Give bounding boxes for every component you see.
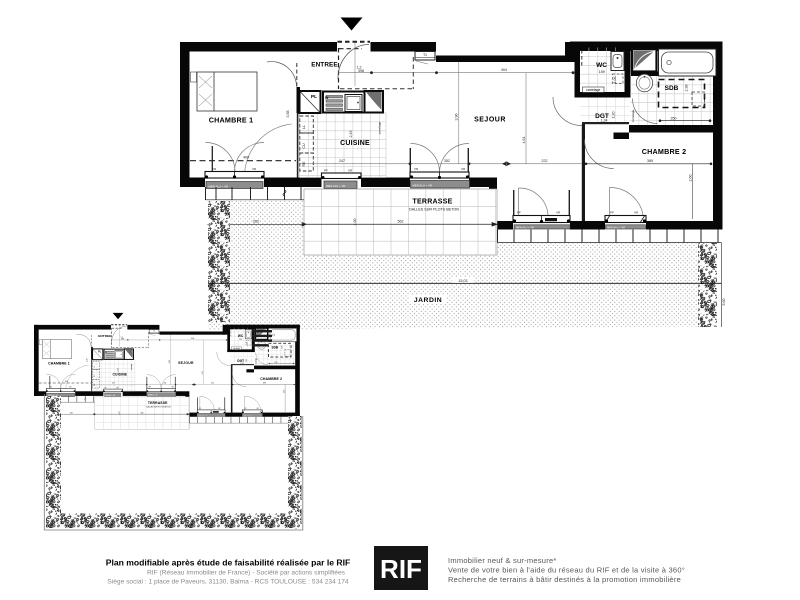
svg-text:PF: PF <box>324 169 328 173</box>
svg-text:VR: VR <box>252 167 257 171</box>
svg-text:CU: CU <box>302 143 306 149</box>
svg-text:MEN ALU + VR: MEN ALU + VR <box>413 184 432 188</box>
svg-text:MEN ALU + VR: MEN ALU + VR <box>607 225 625 229</box>
svg-text:carrelage: carrelage <box>586 88 600 92</box>
svg-text:RIF: RIF <box>380 554 422 584</box>
svg-text:Siège social : 1 place de Pave: Siège social : 1 place de Paveurs, 31130… <box>107 579 349 586</box>
svg-text:250: 250 <box>671 116 677 120</box>
svg-text:RIF (Réseau Immobilier de Fra: RIF (Réseau Immobilier de France) - Soci… <box>147 570 346 577</box>
svg-text:VR: VR <box>556 211 561 215</box>
svg-text:CHAMBRE 2: CHAMBRE 2 <box>642 147 687 156</box>
svg-text:159: 159 <box>599 70 605 74</box>
svg-text:VR: VR <box>414 167 419 171</box>
svg-text:Immobilier neuf & sur-mesure*: Immobilier neuf & sur-mesure* <box>448 556 557 565</box>
svg-text:222: 222 <box>542 159 548 163</box>
svg-text:247: 247 <box>339 159 345 163</box>
svg-text:5,60: 5,60 <box>722 299 726 306</box>
svg-text:Vente de votre bien à l'aide d: Vente de votre bien à l'aide du réseau d… <box>448 566 685 575</box>
svg-text:SDB: SDB <box>665 85 679 92</box>
svg-text:JARDIN: JARDIN <box>414 297 442 304</box>
svg-text:CHAMBRE 1: CHAMBRE 1 <box>209 116 254 125</box>
svg-text:404: 404 <box>501 68 507 72</box>
svg-text:562: 562 <box>398 220 404 224</box>
svg-text:PL: PL <box>311 94 317 100</box>
svg-text:ENTREE: ENTREE <box>311 62 338 69</box>
svg-text:Recherche de terrains à bâti: Recherche de terrains à bâtir destinés à… <box>448 575 681 584</box>
svg-text:DALLES SUR PLOTS BETON: DALLES SUR PLOTS BETON <box>409 208 459 212</box>
svg-text:WC: WC <box>596 62 607 69</box>
svg-text:MEN ALU + VR: MEN ALU + VR <box>326 184 345 188</box>
svg-text:MEN ALU + VR: MEN ALU + VR <box>209 185 228 189</box>
svg-text:3,58: 3,58 <box>286 111 290 118</box>
svg-text:Plan modifiable après étude de: Plan modifiable après étude de faisabili… <box>106 558 351 568</box>
svg-text:VR: VR <box>212 167 217 171</box>
svg-text:400: 400 <box>243 156 249 160</box>
svg-text:4,00: 4,00 <box>353 219 357 226</box>
svg-text:2,38: 2,38 <box>685 85 689 92</box>
svg-text:389: 389 <box>647 159 653 163</box>
svg-text:VR: VR <box>634 211 639 215</box>
svg-text:MEN ALU + VR: MEN ALU + VR <box>516 225 534 229</box>
svg-text:PF: PF <box>517 211 521 215</box>
svg-text:VR: VR <box>348 169 353 173</box>
svg-text:1,06: 1,06 <box>613 77 617 84</box>
svg-text:1,20: 1,20 <box>612 112 616 119</box>
svg-text:LL: LL <box>302 125 306 129</box>
svg-text:1,34: 1,34 <box>601 119 608 123</box>
svg-text:SEJOUR: SEJOUR <box>474 117 506 124</box>
svg-text:CUISINE: CUISINE <box>340 140 370 147</box>
svg-text:2,49: 2,49 <box>349 131 353 138</box>
svg-text:T1: T1 <box>423 53 427 57</box>
svg-text:VR: VR <box>461 167 466 171</box>
svg-text:2,60: 2,60 <box>689 175 693 182</box>
svg-text:4,61: 4,61 <box>522 137 526 144</box>
svg-text:carrelage: carrelage <box>378 121 382 134</box>
svg-text:398: 398 <box>358 69 364 73</box>
svg-text:carrelage: carrelage <box>631 109 635 122</box>
svg-text:3,96: 3,96 <box>455 114 459 121</box>
svg-text:352: 352 <box>444 159 450 163</box>
svg-text:15,03: 15,03 <box>459 279 468 283</box>
svg-text:TERRASSE: TERRASSE <box>412 199 452 206</box>
svg-text:PF: PF <box>610 211 614 215</box>
